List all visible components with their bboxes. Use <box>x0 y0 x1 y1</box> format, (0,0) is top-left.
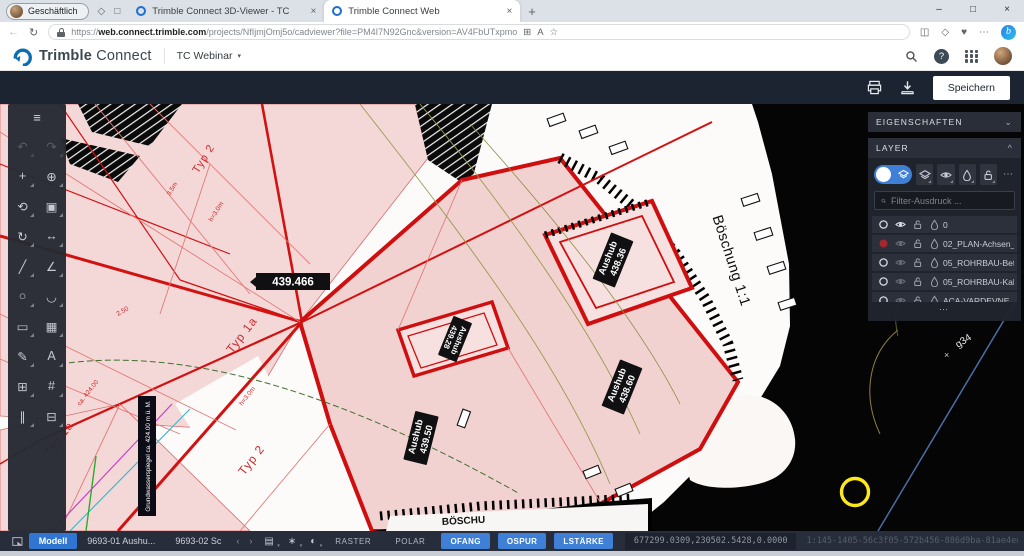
trimble-header: Trimble Connect TC Webinar ▾ ? <box>0 42 1024 71</box>
svg-text:439.466: 439.466 <box>272 277 314 289</box>
survey-point-marker: × <box>944 350 949 360</box>
show-all-button[interactable] <box>937 164 954 185</box>
save-button[interactable]: Speichern <box>933 76 1010 100</box>
rectangle-tool-icon[interactable]: ▭ <box>8 311 37 341</box>
apps-grid-icon[interactable] <box>965 50 978 63</box>
dimension-tool-icon[interactable]: # <box>37 371 66 401</box>
undo-icon[interactable]: ↶ <box>8 131 37 161</box>
eye-icon <box>940 169 952 181</box>
layer-state-icon[interactable] <box>878 276 889 287</box>
pan-icon[interactable]: + <box>8 161 37 191</box>
trimble-favicon <box>136 6 146 16</box>
view-box-icon[interactable]: ▣ <box>37 191 66 221</box>
layer-state-icon[interactable] <box>878 257 889 268</box>
print-icon[interactable] <box>867 80 882 95</box>
measure-icon[interactable]: ↔ <box>37 221 66 251</box>
model-tab[interactable]: Modell <box>29 533 78 549</box>
collapse-icon[interactable]: ⌄ <box>1004 117 1013 128</box>
search-icon <box>881 196 886 206</box>
layer-row[interactable]: 02_PLAN-Achsen_... <box>872 235 1017 252</box>
elevation-label: 439.466 <box>250 273 330 290</box>
tab-scroll-right-icon[interactable]: › <box>244 536 257 546</box>
copilot-icon[interactable]: b <box>1001 25 1016 40</box>
freeze-layer-button[interactable] <box>959 164 976 185</box>
tab-title: Trimble Connect Web <box>348 6 500 17</box>
layout-icon[interactable] <box>12 536 23 547</box>
edit-tool-icon[interactable]: ✎ <box>8 341 37 371</box>
vertical-tabs-icon[interactable]: □ <box>114 6 120 17</box>
droplet-icon[interactable] <box>929 276 940 287</box>
layer-filter <box>874 191 1015 210</box>
layers-icon <box>898 169 909 180</box>
eye-icon[interactable] <box>895 219 906 230</box>
viewer-toolbar: Speichern <box>0 71 1024 104</box>
isolate-layers-button[interactable] <box>916 164 933 185</box>
collapse-icon[interactable]: ^ <box>1008 143 1013 153</box>
save-tool-icon[interactable]: ⊟ <box>37 401 66 431</box>
browser-addressbar: ← ↻ https://web.connect.trimble.com/proj… <box>0 22 1024 42</box>
eye-icon[interactable] <box>895 276 906 287</box>
chevron-down-icon: ▾ <box>237 52 241 60</box>
layers-panel-header[interactable]: LAYER ^ <box>868 138 1021 158</box>
ofang-button[interactable]: OFANG <box>441 533 489 549</box>
app-window: Geschäftlich ◇ □ Trimble Connect 3D-View… <box>0 0 1024 556</box>
collections-icon[interactable]: ◇ <box>941 27 949 38</box>
profile-avatar <box>10 5 23 18</box>
help-icon[interactable]: ? <box>934 49 949 64</box>
layer-row[interactable]: 0 <box>872 216 1017 233</box>
minimize-button[interactable]: – <box>922 0 956 22</box>
rotate-icon[interactable]: ↻ <box>8 221 37 251</box>
layer-row[interactable]: 05_ROHRBAU-Bet... <box>872 254 1017 271</box>
droplet-icon[interactable] <box>929 295 940 302</box>
zoom-icon[interactable]: ⊕ <box>37 161 66 191</box>
hatch-tool-icon[interactable]: ▦ <box>37 311 66 341</box>
session-id: 1:145-1405-56c3f05-572b456-886d9ba-81ae4… <box>806 536 1018 546</box>
text-tool-icon[interactable]: A <box>37 341 66 371</box>
groundwater-label: Grundwasserspiegel ca. 424.00 m ü. M. <box>138 396 156 516</box>
lock-icon[interactable] <box>912 257 923 268</box>
window-bottom-edge <box>0 551 1024 556</box>
back-icon[interactable]: ← <box>8 26 19 38</box>
line-tool-icon[interactable]: ╱ <box>8 251 37 281</box>
window-controls: – □ × <box>922 0 1024 22</box>
close-button[interactable]: × <box>990 0 1024 22</box>
layer-state-icon[interactable] <box>878 238 889 249</box>
layer-controls: ⋯ <box>868 158 1021 189</box>
polar-toggle[interactable]: POLAR <box>395 537 425 546</box>
orbit-icon[interactable]: ⟲ <box>8 191 37 221</box>
eye-icon[interactable] <box>895 295 906 302</box>
droplet-icon[interactable] <box>929 219 940 230</box>
layers-panel: LAYER ^ ⋯ 0 <box>868 138 1021 321</box>
brand-text: Trimble Connect <box>39 48 152 64</box>
tab-scroll-left-icon[interactable]: ‹ <box>231 536 244 546</box>
split-screen-icon[interactable]: ◫ <box>920 27 929 38</box>
layer-name: 05_ROHRBAU-Kal... <box>943 277 1014 287</box>
lock-icon <box>57 28 65 37</box>
trimble-logo[interactable]: Trimble Connect <box>12 46 152 66</box>
lock-icon[interactable] <box>912 238 923 249</box>
layer-mode-toggle[interactable] <box>874 165 912 184</box>
droplet-icon <box>961 169 973 181</box>
tab-close-icon[interactable]: × <box>310 6 316 17</box>
coordinate-readout: 677299.0309,230502.5428,0.0000 <box>625 533 797 550</box>
lock-icon[interactable] <box>912 276 923 287</box>
header-actions: ? <box>905 47 1012 65</box>
maximize-button[interactable]: □ <box>956 0 990 22</box>
layer-name: 05_ROHRBAU-Bet... <box>943 258 1014 268</box>
trimble-logo-icon <box>12 46 32 66</box>
tab-title: Trimble Connect 3D-Viewer - TC <box>152 6 304 17</box>
lock-layer-button[interactable] <box>980 164 997 185</box>
svg-text:Grundwasserspiegel ca. 424.00: Grundwasserspiegel ca. 424.00 m ü. M. <box>145 400 152 512</box>
browser-tab-1[interactable]: Trimble Connect 3D-Viewer - TC × <box>128 0 324 22</box>
layers-icon <box>919 169 931 181</box>
more-menu-icon[interactable]: ⋯ <box>979 27 989 38</box>
search-icon[interactable] <box>905 50 918 63</box>
ucs-settings-icon[interactable]: ◐ <box>310 536 316 547</box>
ospur-button[interactable]: OSPUR <box>498 533 546 549</box>
layer-row[interactable]: ACA-VARDEVNE <box>872 292 1017 302</box>
snap-settings-icon[interactable]: ∗ <box>288 536 296 547</box>
layer-row[interactable]: 05_ROHRBAU-Kal... <box>872 273 1017 290</box>
header-divider <box>164 48 165 64</box>
refresh-icon[interactable]: ↻ <box>29 26 38 39</box>
layer-list: 0 02_PLAN-Achsen_... 05_ROHRBAU-Bet... <box>868 216 1021 302</box>
properties-panel-header[interactable]: EIGENSCHAFTEN ⌄ <box>868 112 1021 132</box>
eye-icon[interactable] <box>895 257 906 268</box>
polyline-tool-icon[interactable]: ∠ <box>37 251 66 281</box>
lock-icon <box>982 169 994 181</box>
lstaerke-button[interactable]: LSTÄRKE <box>554 533 613 549</box>
workspaces-icon[interactable]: ◇ <box>98 6 106 17</box>
lock-icon[interactable] <box>912 295 923 302</box>
layer-state-icon[interactable] <box>878 295 889 302</box>
offset-tool-icon[interactable]: ∥ <box>8 401 37 431</box>
trimble-favicon <box>332 6 342 16</box>
browser-tab-2[interactable]: Trimble Connect Web × <box>324 0 520 22</box>
grid-icon[interactable]: ⊞ <box>523 27 531 38</box>
tab-close-icon[interactable]: × <box>506 6 512 17</box>
project-name: TC Webinar <box>177 50 233 62</box>
new-tab-button[interactable]: + <box>528 4 536 19</box>
array-tool-icon[interactable]: ⊞ <box>8 371 37 401</box>
user-avatar[interactable] <box>994 47 1012 65</box>
project-selector[interactable]: TC Webinar ▾ <box>177 50 241 62</box>
arc-tool-icon[interactable]: ◡ <box>37 281 66 311</box>
properties-title: EIGENSCHAFTEN <box>876 117 963 127</box>
redo-icon[interactable]: ↷ <box>37 131 66 161</box>
eye-icon[interactable] <box>895 238 906 249</box>
sheet-settings-icon[interactable]: ▤ <box>264 536 273 547</box>
browser-toolbar-icons: ◫ ◇ ♥ ⋯ b <box>920 25 1016 40</box>
properties-panel: EIGENSCHAFTEN ⌄ <box>868 112 1021 132</box>
layer-name: ACA-VARDEVNE <box>943 296 1014 303</box>
more-options-icon[interactable]: ⋯ <box>1001 169 1015 180</box>
layout-tab-2[interactable]: 9693-02 Sc <box>165 533 231 549</box>
browser-profile-button[interactable]: Geschäftlich <box>6 3 89 20</box>
favorite-star-icon[interactable]: ☆ <box>550 27 559 38</box>
layers-title: LAYER <box>876 143 909 153</box>
read-aloud-icon[interactable]: A <box>537 27 543 38</box>
droplet-icon[interactable] <box>929 257 940 268</box>
layout-tab-1[interactable]: 9693-01 Aushu... <box>77 533 165 549</box>
layer-name: 0 <box>943 220 1014 230</box>
circle-tool-icon[interactable]: ○ <box>8 281 37 311</box>
cad-tool-palette: ≡ ↶ ↷ + ⊕ ⟲ ▣ ↻ ↔ ╱ ∠ ○ ◡ ▭ ▦ ✎ A ⊞ # ∥ … <box>8 104 66 531</box>
layer-filter-input[interactable] <box>891 196 1008 206</box>
raster-toggle[interactable]: RASTER <box>335 537 371 546</box>
layer-name: 02_PLAN-Achsen_... <box>943 239 1014 249</box>
panel-more-indicator[interactable]: ⋯ <box>868 304 1021 315</box>
cad-statusbar: Modell 9693-01 Aushu... 9693-02 Sc ‹ › ▤… <box>0 531 1024 551</box>
browser-tabstrip: Geschäftlich ◇ □ Trimble Connect 3D-View… <box>0 0 1024 22</box>
profile-name: Geschäftlich <box>28 6 78 16</box>
browser-essentials-icon[interactable]: ♥ <box>961 27 967 38</box>
lock-icon[interactable] <box>912 219 923 230</box>
url-text[interactable]: https://web.connect.trimble.com/projects… <box>71 27 517 37</box>
url-field[interactable]: https://web.connect.trimble.com/projects… <box>48 24 910 40</box>
droplet-icon[interactable] <box>929 238 940 249</box>
download-icon[interactable] <box>900 80 915 95</box>
menu-icon[interactable]: ≡ <box>8 110 66 125</box>
layer-state-icon[interactable] <box>878 219 889 230</box>
